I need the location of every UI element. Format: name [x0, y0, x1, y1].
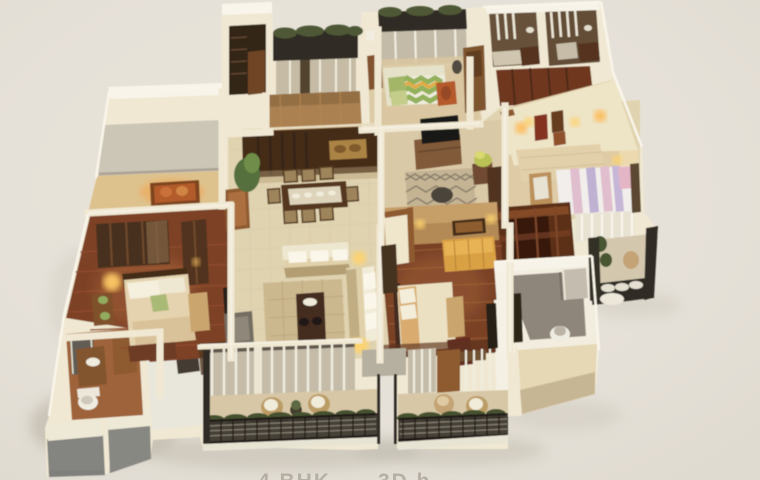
svg-text:3D h: 3D h [378, 470, 432, 480]
svg-text:4 BHK: 4 BHK [258, 470, 331, 480]
